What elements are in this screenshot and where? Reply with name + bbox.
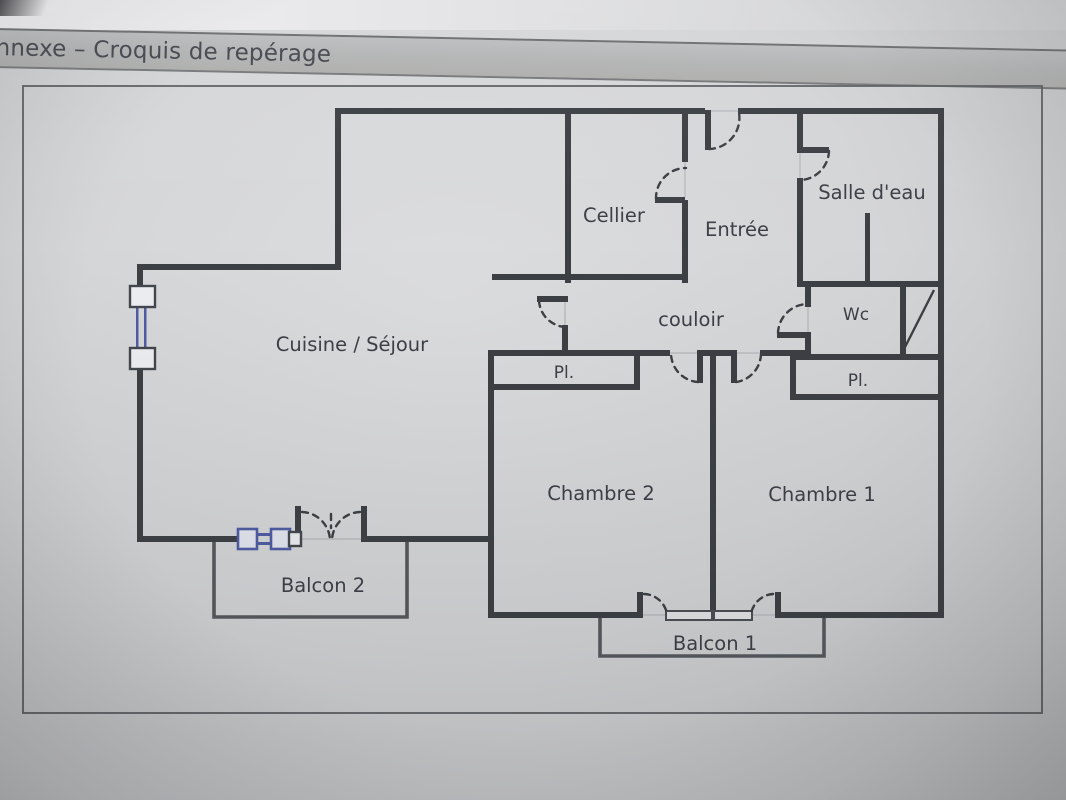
wall-cuisine-bottom-b — [365, 536, 492, 542]
cuisine-couloir-door-stub — [562, 325, 568, 353]
placard1-top — [790, 354, 938, 360]
wall-salledeau-west-upper — [797, 110, 803, 150]
couloir-south-west — [489, 350, 670, 356]
balcon1-door-leaf-left — [637, 592, 643, 618]
salledeau-door-arc — [801, 151, 829, 180]
wc-door-leaf — [777, 332, 808, 338]
balcon1-window-sill-right — [714, 611, 752, 620]
wall-salledeau-bottom — [797, 281, 938, 287]
room-label-chambre1: Chambre 1 — [768, 483, 876, 506]
balcon2-jamb-foot — [289, 532, 301, 546]
balcon2-window-frame-left — [238, 529, 257, 549]
placard1-bottom — [790, 394, 938, 400]
room-label-chambre2: Chambre 2 — [547, 482, 655, 505]
wall-cuisine-step — [137, 264, 341, 270]
wall-salledeau-west-lower — [797, 178, 803, 287]
room-label-salle-deau: Salle d'eau — [818, 181, 925, 204]
wall-top-left — [335, 108, 705, 114]
balcon2-window-frame-right — [271, 529, 290, 549]
wall-cuisine-upper-left — [335, 108, 341, 270]
room-label-entree: Entrée — [705, 218, 769, 241]
entrance-door-leaf — [705, 110, 711, 150]
room-label-wc: Wc — [843, 305, 869, 325]
wall-chambre1-bottom — [778, 612, 944, 618]
cuisine-window-frame-top — [130, 286, 155, 307]
shaft-diagonal — [903, 290, 934, 351]
wall-cellier-right-upper — [682, 108, 688, 162]
wall-cellier-bottom — [492, 274, 688, 280]
chambre2-door-arc — [671, 353, 698, 382]
placard1-left — [790, 354, 796, 400]
windows — [130, 286, 752, 620]
cuisine-window-glazing — [136, 306, 139, 349]
photographed-document-page: { "header": { "title": "nnexe – Croquis … — [0, 0, 1066, 800]
salledeau-door-leaf — [797, 147, 829, 153]
wall-chambre2-left — [488, 350, 494, 618]
room-labels: Cuisine / Séjour Cellier Entrée Salle d'… — [276, 181, 926, 655]
wall-cuisine-left-lower — [137, 366, 143, 542]
chambre2-door-leaf — [697, 353, 703, 383]
room-label-cuisine-sejour: Cuisine / Séjour — [276, 333, 429, 356]
wall-exterior-right — [938, 108, 944, 618]
balcon2-frenchdoor-arc-right — [332, 512, 360, 540]
balcon2-window-glazing — [256, 533, 272, 536]
balcon1-door-leaf-right — [775, 592, 781, 618]
couloir-south-east — [760, 350, 808, 356]
balcon2-door-jamb-right — [361, 506, 367, 542]
floor-plan-sketch: Cuisine / Séjour Cellier Entrée Salle d'… — [0, 0, 1066, 800]
balcon2-frenchdoor-arc-left — [302, 512, 330, 540]
cuisine-window-frame-bottom — [130, 348, 155, 369]
cuisine-couloir-door-arc — [539, 301, 565, 327]
wall-cuisine-bottom-a — [137, 536, 241, 542]
room-label-balcon1: Balcon 1 — [673, 632, 757, 655]
balcon1-door-arc-left — [644, 594, 667, 614]
cuisine-couloir-door-leaf — [537, 296, 568, 302]
room-label-cellier: Cellier — [583, 204, 646, 227]
room-label-balcon2: Balcon 2 — [281, 574, 365, 597]
room-label-placard-chambre1: Pl. — [848, 371, 868, 391]
room-label-placard-chambre2: Pl. — [554, 363, 574, 383]
wall-cuisine-cellier — [565, 108, 571, 283]
wc-door-arc — [778, 304, 808, 333]
cellier-door-leaf — [655, 197, 685, 203]
cellier-door-arc — [656, 168, 686, 199]
wall-top-right — [738, 108, 944, 114]
wall-cellier-right-lower — [682, 200, 688, 283]
balcon1-door-arc-right — [751, 594, 773, 614]
chambre1-door-arc — [736, 353, 761, 382]
entrance-door-arc — [709, 113, 739, 149]
wall-chambre2-bottom — [488, 612, 643, 618]
room-label-couloir: couloir — [658, 308, 725, 331]
balcon1-window-sill-left — [666, 611, 712, 620]
placard2-bottom — [489, 384, 640, 390]
wall-salledeau-partition — [865, 213, 870, 287]
chambre1-door-leaf — [731, 353, 737, 383]
wall-chambres-divider — [710, 350, 716, 618]
